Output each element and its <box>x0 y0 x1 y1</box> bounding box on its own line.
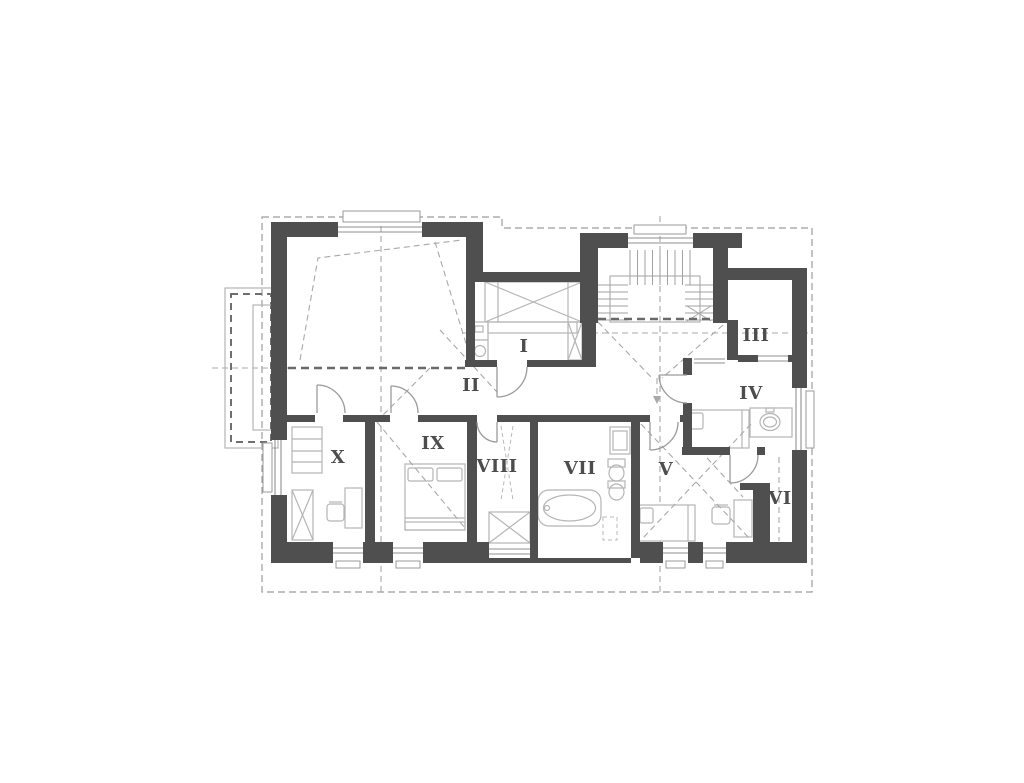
room-label-iv: IV <box>739 383 763 404</box>
room-label-v: V <box>658 459 674 480</box>
knee-wall-dashed <box>288 319 712 368</box>
room-label-iii: III <box>743 325 770 346</box>
bathtub-symbol <box>538 490 601 526</box>
walls <box>271 222 807 563</box>
desk-symbol <box>345 488 362 528</box>
window-bottom-v-left <box>663 548 688 568</box>
floor-plan-drawing: I II III IV V VI VII VIII IX X <box>0 0 1024 783</box>
door-room-x <box>317 385 345 413</box>
door-room-i <box>497 367 527 397</box>
staircase <box>598 250 713 322</box>
door-room-vi <box>730 455 758 483</box>
room-label-vi: VI <box>767 488 791 509</box>
wardrobe-symbol <box>292 490 313 540</box>
door-room-iv <box>659 375 687 403</box>
room-label-i: I <box>520 336 529 357</box>
window-bottom-ix <box>393 548 423 568</box>
double-bed-symbol <box>405 464 465 530</box>
room-label-x: X <box>331 447 345 468</box>
chair-symbol <box>327 502 344 521</box>
floor-plan-canvas: I II III IV V VI VII VIII IX X <box>0 0 1024 783</box>
room-label-viii: VIII <box>475 456 517 477</box>
window-top-left <box>338 211 422 232</box>
door-room-viii <box>477 422 497 442</box>
storage-shelf-symbol <box>485 282 582 322</box>
sink-icon <box>610 427 630 454</box>
room-label-vii: VII <box>563 458 596 479</box>
toilet-icon <box>608 459 625 481</box>
desk-symbol <box>734 500 752 537</box>
niche-dashed <box>603 517 617 540</box>
door-room-v <box>650 422 678 450</box>
single-bed-symbol <box>687 410 749 448</box>
window-bottom-x <box>333 548 363 568</box>
cabinet-symbol <box>489 512 530 543</box>
room-label-ii: II <box>462 375 480 396</box>
counter-symbol <box>488 322 577 333</box>
washbasin-icon <box>750 408 792 437</box>
window-bottom-viii <box>489 549 530 554</box>
window-bottom-v-right <box>703 548 726 568</box>
door-room-ix <box>391 386 418 413</box>
window-right-wall <box>796 388 814 450</box>
cabinet-symbol <box>568 322 582 360</box>
room-label-ix: IX <box>421 433 444 454</box>
bidet-icon <box>608 481 625 500</box>
shelf-unit-symbol <box>292 427 322 473</box>
